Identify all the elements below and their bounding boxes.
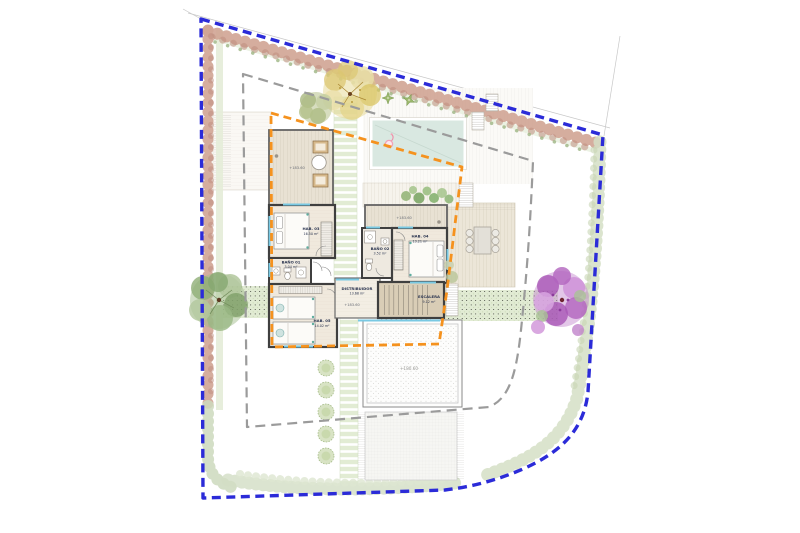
- purple-shrub: [531, 320, 545, 334]
- hedge-inner-strip: [216, 30, 223, 410]
- staircase: ESCALERA 9.12 m²: [378, 282, 444, 322]
- purple-shrub: [572, 324, 584, 336]
- room-hab03: HAB. 03 16.50 m²: [269, 205, 335, 258]
- distribuidor-area-label: 13.68 m²: [349, 292, 365, 296]
- twin-bed: [273, 322, 315, 344]
- bano02-name-label: BAÑO 02: [371, 246, 390, 251]
- hab05-area-label: 14.02 m²: [314, 324, 330, 328]
- chair: [492, 229, 499, 236]
- room-hab05: HAB. 05 14.02 m²: [269, 284, 337, 347]
- room-bano02: BAÑO 02 3.52 m²: [362, 228, 392, 278]
- distribuidor-name-label: DISTRIBUIDOR: [342, 286, 373, 291]
- toilet: [366, 263, 372, 270]
- hab03-area-label: 16.50 m²: [303, 232, 319, 236]
- toilet: [285, 272, 291, 279]
- terrace-ne-level-label: +183.60: [396, 216, 412, 220]
- escalera-area-label: 9.12 m²: [423, 300, 437, 304]
- chair: [466, 229, 473, 236]
- column-dot: [437, 220, 441, 224]
- pillow: [277, 232, 283, 244]
- hab05-name-label: HAB. 05: [313, 318, 330, 323]
- lower-terrace: [358, 412, 464, 480]
- chair: [466, 237, 473, 244]
- tree-trunk: [348, 92, 352, 96]
- distribuidor-level-label: +183.60: [344, 303, 360, 307]
- room-hab04: HAB. 04 13.21 m²: [392, 228, 447, 283]
- hab04-name-label: HAB. 04: [411, 234, 428, 239]
- room-distribuidor: DISTRIBUIDOR 13.68 m² +183.60: [335, 278, 380, 318]
- fire-table: [312, 155, 326, 169]
- pillow: [437, 245, 443, 257]
- sink: [381, 238, 389, 245]
- sink: [272, 267, 280, 275]
- bano01-area-label: 3.04 m²: [285, 265, 299, 269]
- terrace-northwest: +183.60: [269, 130, 333, 205]
- bano02-area-label: 3.52 m²: [374, 251, 388, 255]
- shower: [296, 267, 306, 278]
- terrace-northeast: +183.60: [365, 205, 447, 228]
- hab04-area-label: 13.21 m²: [412, 239, 428, 243]
- chair: [492, 237, 499, 244]
- exterior-steps-east: [446, 284, 458, 316]
- tree-trunk: [560, 298, 564, 302]
- bano01-name-label: BAÑO 01: [282, 260, 301, 265]
- column-dot: [275, 154, 279, 158]
- chair: [466, 245, 473, 252]
- twin-bed: [273, 297, 315, 319]
- sunken-courtyard: +180.60: [363, 320, 462, 407]
- pillow: [277, 217, 283, 229]
- site-plan-drawing: +180.60 +183.60 +183.60: [0, 0, 800, 533]
- courtyard-level-label: +180.60: [400, 366, 418, 371]
- hab03-name-label: HAB. 03: [302, 226, 319, 231]
- terrace-nw-level-label: +183.60: [289, 166, 305, 170]
- escalera-name-label: ESCALERA: [418, 294, 440, 299]
- shower: [365, 231, 376, 243]
- site-plan-canvas: +180.60 +183.60 +183.60: [0, 0, 800, 533]
- tree-trunk: [217, 298, 221, 302]
- room-bano01: BAÑO 01 3.04 m²: [269, 258, 311, 284]
- chair: [492, 245, 499, 252]
- dining-table: [474, 227, 491, 254]
- pillow: [437, 259, 443, 271]
